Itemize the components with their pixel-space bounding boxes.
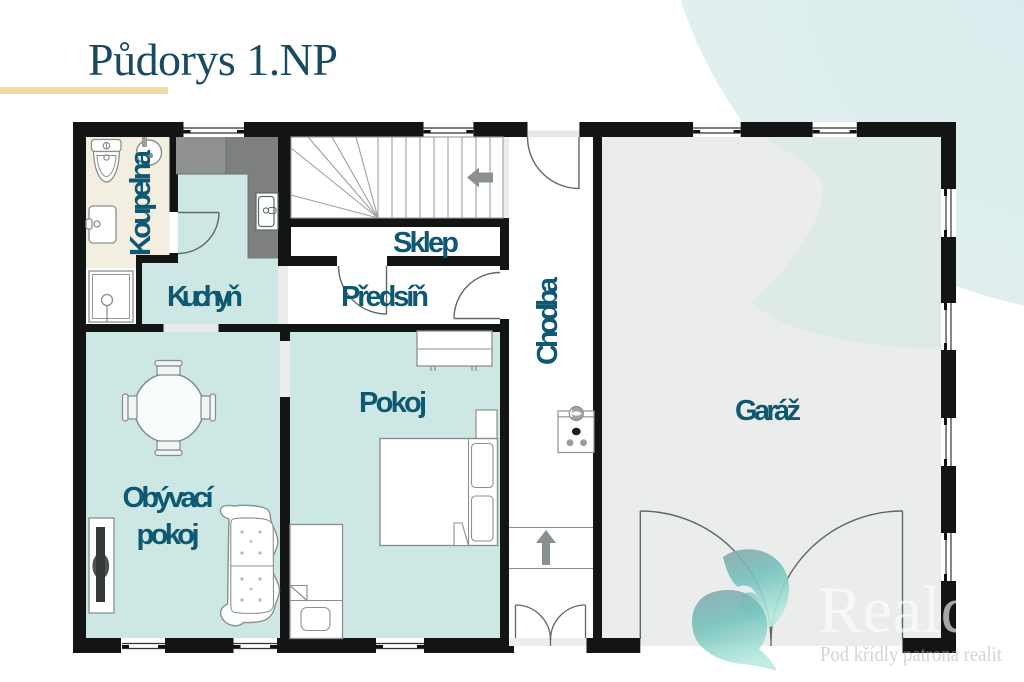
svg-text:Obývací: Obývací bbox=[123, 482, 215, 514]
svg-text:Kuchyň: Kuchyň bbox=[167, 281, 243, 313]
svg-text:Chodba: Chodba bbox=[532, 276, 564, 365]
svg-text:Půdorys 1.NP: Půdorys 1.NP bbox=[88, 34, 338, 85]
svg-text:pokoj: pokoj bbox=[137, 519, 200, 551]
svg-text:Sklep: Sklep bbox=[393, 227, 459, 259]
svg-text:Garáž: Garáž bbox=[735, 395, 801, 427]
svg-text:Pokoj: Pokoj bbox=[359, 387, 427, 419]
svg-text:Předsíň: Předsíň bbox=[341, 281, 429, 313]
svg-text:Realdor: Realdor bbox=[818, 573, 1024, 647]
svg-text:Koupelna: Koupelna bbox=[125, 149, 157, 256]
svg-text:Pod křídly patrona realit: Pod křídly patrona realit bbox=[820, 642, 1002, 666]
